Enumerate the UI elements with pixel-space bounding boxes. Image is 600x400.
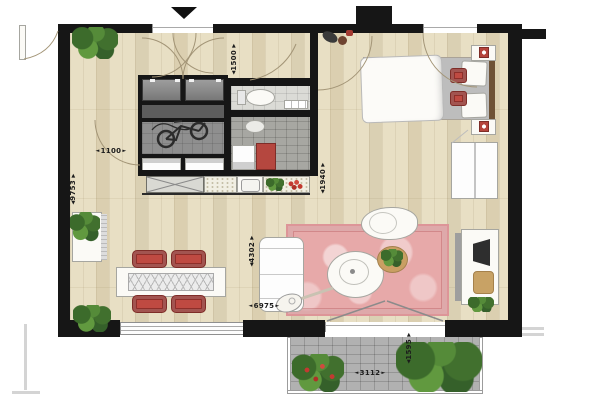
counter-left xyxy=(204,176,237,193)
dim-living-depth: ▲ 4302 ▼ xyxy=(245,228,259,276)
dim-value: 1100 xyxy=(101,148,122,155)
wall-hall-stub xyxy=(310,33,318,83)
bedroom-door-threshold xyxy=(423,24,479,33)
dim-arrow-up: ▲ xyxy=(71,174,75,179)
corner-plant xyxy=(72,27,118,59)
kitchen-herbs xyxy=(266,178,284,191)
door-hinge xyxy=(189,79,194,82)
door-hinge xyxy=(150,79,155,82)
desk-chair xyxy=(473,271,494,294)
dim-value: 1940 xyxy=(320,169,327,190)
outside-window-arc xyxy=(24,31,58,59)
stool-plant xyxy=(381,249,403,267)
door-hinge xyxy=(216,79,221,82)
storage-room-floor xyxy=(142,122,224,154)
dim-balcony-width: ◄ 3112 ► xyxy=(338,368,402,379)
wall-top-right-a xyxy=(392,24,423,33)
dining-chair xyxy=(171,250,206,268)
desk-plant xyxy=(468,297,494,312)
door-hinge xyxy=(175,79,180,82)
armchair-cushion xyxy=(369,212,397,234)
dim-entry-depth: ▲ 1500 ▼ xyxy=(227,40,241,80)
neighbor-balcony-rail xyxy=(12,391,40,394)
dim-balcony-depth: ▲ 1595 ▼ xyxy=(402,329,416,369)
dim-arrow-left: ◄ xyxy=(355,371,359,376)
bed-cushion-red xyxy=(450,68,467,83)
dim-arrow-right: ► xyxy=(122,149,126,154)
wall-bottom-right xyxy=(445,320,522,337)
window-bottom xyxy=(120,322,245,335)
dim-bedroom-pass: ▲ 1940 ▼ xyxy=(316,156,330,202)
dim-hall-width: ◄ 1100 ► xyxy=(84,146,138,157)
dim-value: 6975 xyxy=(254,303,275,310)
dim-value: 1595 xyxy=(406,339,413,360)
dim-value: 3112 xyxy=(360,370,381,377)
dim-arrow-left: ◄ xyxy=(249,304,253,309)
entry-door-threshold xyxy=(152,24,215,33)
dining-chair xyxy=(171,295,206,313)
balcony-rail-left xyxy=(287,337,291,393)
bathroom-shelf xyxy=(284,100,308,109)
dim-arrow-down: ▼ xyxy=(321,190,325,195)
sink-basin xyxy=(241,179,260,192)
laundry-cabinet-red xyxy=(256,143,276,170)
dining-chair xyxy=(132,250,167,268)
dim-arrow-right: ► xyxy=(381,371,385,376)
wall-right xyxy=(508,24,522,337)
sideboard-plant xyxy=(70,212,100,242)
dim-arrow-down: ▼ xyxy=(250,263,254,268)
dim-arrow-up: ▲ xyxy=(250,236,254,241)
bedside-lamp xyxy=(479,47,489,58)
dim-arrow-down: ▼ xyxy=(71,201,75,206)
dim-left-total: ▲ 9753 ▼ xyxy=(67,164,80,216)
bedside-lamp xyxy=(479,121,489,132)
washbasin xyxy=(245,120,265,133)
balcony-flowers-red xyxy=(296,358,340,388)
dim-arrow-down: ▼ xyxy=(407,360,411,365)
dim-arrow-up: ▲ xyxy=(232,44,236,49)
wall-bottom-mid xyxy=(243,320,325,337)
toilet-bowl xyxy=(246,89,275,106)
bed-cushion-red xyxy=(450,91,467,106)
dim-living-width: ◄ 6975 ► xyxy=(233,301,295,312)
closet-door-left xyxy=(142,79,181,101)
dim-arrow-down: ▼ xyxy=(232,71,236,76)
wall-top-right-stub xyxy=(522,29,546,39)
entrance-arrow-icon xyxy=(171,7,197,19)
outside-rail-stub xyxy=(522,327,544,330)
wall-top-mid xyxy=(213,24,356,33)
outside-rail-stub xyxy=(522,333,544,336)
decor-items xyxy=(346,30,353,36)
bed-headboard xyxy=(489,58,495,119)
dim-arrow-left: ◄ xyxy=(96,149,100,154)
closet-door-right xyxy=(185,79,224,101)
dim-value: 1500 xyxy=(231,50,238,71)
wall-column xyxy=(356,6,392,33)
outside-window-leaf xyxy=(19,25,26,60)
decor-items xyxy=(338,36,347,45)
neighbor-balcony-rail xyxy=(24,324,27,390)
dim-arrow-up: ▲ xyxy=(321,163,325,168)
closet-shelf-strip xyxy=(142,105,224,118)
bathroom-divider-wall xyxy=(225,110,318,117)
washing-machine xyxy=(232,145,255,170)
floor-plant xyxy=(73,305,111,332)
wardrobe xyxy=(451,142,498,199)
toilet-tank xyxy=(237,90,246,105)
balcony-door-threshold xyxy=(325,322,447,332)
dim-value: 9753 xyxy=(70,180,77,201)
stove-hatch xyxy=(146,176,204,193)
table-knob xyxy=(350,269,355,274)
floor-plan: ◄ 1100 ► ▲ 9753 ▼ ▲ 1500 ▼ ▲ 1940 ▼ ▲ 43… xyxy=(0,0,600,400)
dining-chair xyxy=(132,295,167,313)
tomatoes xyxy=(287,179,303,191)
bed-duvet xyxy=(360,55,444,124)
dim-arrow-up: ▲ xyxy=(407,333,411,338)
dim-value: 4302 xyxy=(249,242,256,263)
dim-arrow-right: ► xyxy=(275,304,279,309)
sideboard-slats xyxy=(101,214,107,260)
table-runner xyxy=(128,273,214,291)
